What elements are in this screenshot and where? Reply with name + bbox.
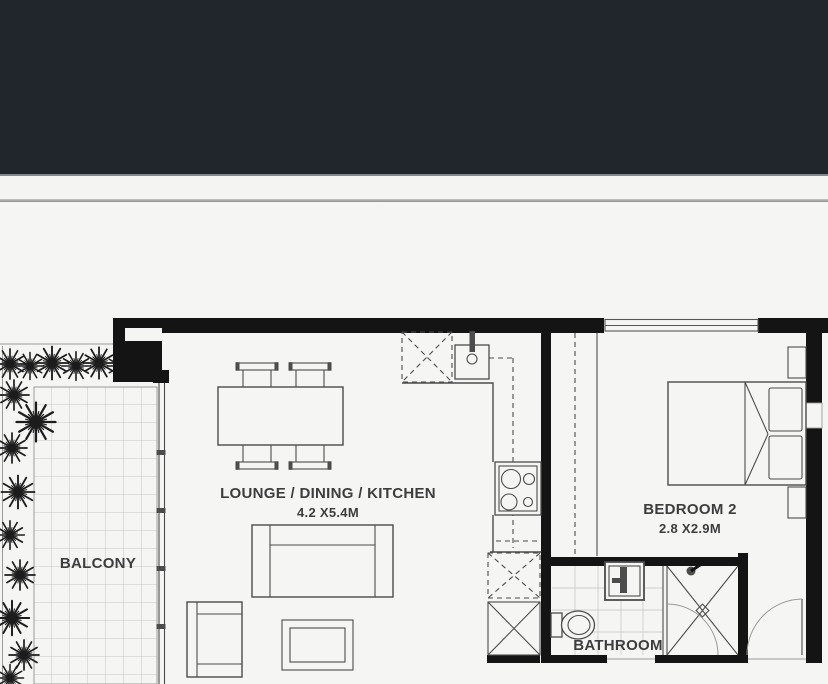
dining-chair xyxy=(236,445,279,470)
bedroom-window xyxy=(605,320,758,332)
nightstand xyxy=(788,347,806,378)
pillow xyxy=(769,436,802,479)
entry-door-swing xyxy=(747,599,802,655)
bed xyxy=(668,382,806,485)
shower xyxy=(663,563,738,655)
bedroom-room: BEDROOM 2 2.8 X2.9M xyxy=(575,333,806,655)
dining-chair xyxy=(289,445,332,470)
lounge-room: LOUNGE / DINING / KITCHEN 4.2 X5.4M xyxy=(187,362,436,677)
floor-plan-drawing: BALCONY xyxy=(0,202,828,684)
kitchen-appliance-icon xyxy=(402,332,452,382)
bathroom-sink-icon xyxy=(605,562,644,600)
sofa xyxy=(252,525,393,597)
header-band xyxy=(0,0,828,176)
bathroom-label: BATHROOM xyxy=(573,637,663,654)
bedroom-label: BEDROOM 2 xyxy=(643,501,737,518)
armchair xyxy=(187,602,242,677)
side-window-notch xyxy=(806,403,822,428)
dining-chair xyxy=(289,362,332,387)
bathroom-room: BATHROOM xyxy=(551,562,738,655)
pillow xyxy=(769,388,802,431)
floorplan-screenshot: BALCONY xyxy=(0,0,828,684)
toilet-icon xyxy=(551,611,595,639)
bedroom-dimensions: 2.8 X2.9M xyxy=(659,521,721,536)
lounge-label: LOUNGE / DINING / KITCHEN xyxy=(220,485,436,502)
lounge-dimensions: 4.2 X5.4M xyxy=(297,505,359,520)
coffee-table xyxy=(282,620,353,670)
balcony-room: BALCONY xyxy=(0,344,166,684)
dining-table xyxy=(218,387,343,445)
nightstand xyxy=(788,487,806,518)
balcony-sliding-door xyxy=(157,383,166,684)
dining-chair xyxy=(236,362,279,387)
cooktop-icon xyxy=(495,462,541,515)
divider-strip xyxy=(0,176,828,199)
kitchen-sink-icon xyxy=(455,331,489,379)
kitchen-unit-icon xyxy=(488,553,540,655)
kitchen-overhead-cabinets xyxy=(489,358,540,548)
balcony-label: BALCONY xyxy=(60,555,136,572)
